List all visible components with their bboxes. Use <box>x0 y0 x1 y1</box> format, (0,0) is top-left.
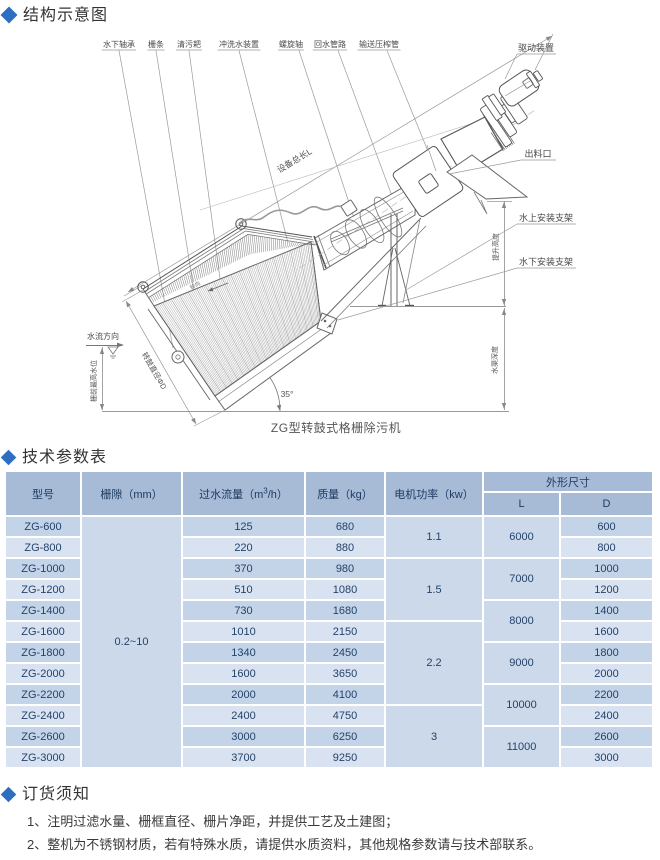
svg-text:水上安装支架: 水上安装支架 <box>519 212 573 223</box>
svg-text:冲洗水装置: 冲洗水装置 <box>219 39 259 49</box>
svg-text:水渠深度: 水渠深度 <box>490 346 499 374</box>
svg-text:输送压榨管: 输送压榨管 <box>359 39 399 49</box>
svg-text:水下安装支架: 水下安装支架 <box>519 256 573 267</box>
svg-text:驱动装置: 驱动装置 <box>518 42 554 53</box>
svg-text:提升高度: 提升高度 <box>491 233 500 261</box>
svg-text:螺旋轴: 螺旋轴 <box>279 39 303 49</box>
svg-text:清污耙: 清污耙 <box>177 39 201 49</box>
svg-text:回水管路: 回水管路 <box>314 39 346 49</box>
svg-text:35°: 35° <box>281 389 294 399</box>
svg-text:水下轴承: 水下轴承 <box>103 39 135 49</box>
svg-text:设备总长L: 设备总长L <box>275 146 314 175</box>
svg-text:栅前最高水位: 栅前最高水位 <box>89 360 98 402</box>
svg-text:栅条: 栅条 <box>148 39 164 49</box>
svg-text:转鼓直径ΦD: 转鼓直径ΦD <box>140 350 170 391</box>
svg-text:水流方向: 水流方向 <box>87 331 119 341</box>
svg-text:出料口: 出料口 <box>524 148 551 159</box>
svg-text:ZG型转鼓式格栅除污机: ZG型转鼓式格栅除污机 <box>271 420 401 435</box>
